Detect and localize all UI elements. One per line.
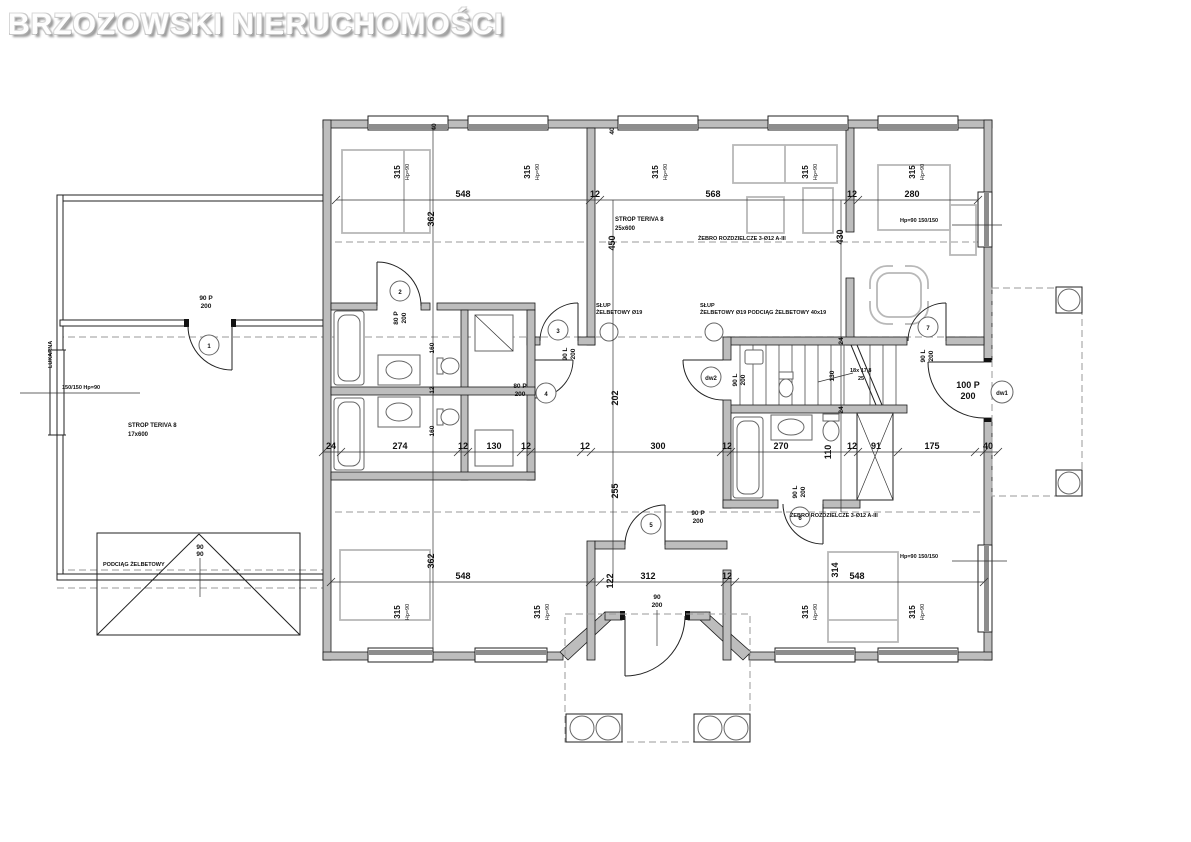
window-label-left: 150/150 Hp=90 (62, 385, 100, 391)
dim-label: 12 (847, 441, 857, 451)
stairs-note-line1: 18x 17,8 (850, 368, 871, 374)
dim-label: 568 (705, 189, 720, 199)
dim-label: 24 (838, 337, 845, 345)
window-size-label: 315 (801, 605, 810, 619)
window-right-2 (978, 545, 992, 632)
window-sill-label: Hp=90 (663, 164, 669, 180)
strop-terrace-label: STROP TERIVA 8 (128, 423, 177, 429)
window-sill-label: Hp=90 (813, 164, 819, 180)
dim-label: 430 (835, 229, 845, 244)
window-size-label: 315 (523, 165, 532, 179)
door-height: 200 (740, 374, 747, 385)
podciag-label: PODCIĄG ŻELBETOWY (103, 561, 165, 568)
strop-terrace-size: 17x600 (128, 432, 149, 438)
door-tag: dw2 (705, 376, 717, 382)
dim-label: 175 (924, 441, 939, 451)
dim-label: 40 (983, 441, 993, 451)
dim-label: 12 (429, 386, 436, 394)
window-label-right-bottom: Hp=90 150/150 (900, 554, 938, 560)
dim-label: 270 (773, 441, 788, 451)
dim-label: 12 (722, 571, 732, 581)
window-sill-label: Hp=90 (545, 604, 551, 620)
window-size-label: 315 (393, 605, 402, 619)
dim-label: 12 (722, 441, 732, 451)
dim-label: 362 (426, 211, 436, 226)
window-bottom-3 (775, 648, 855, 662)
window-top-5 (878, 116, 958, 130)
dim-label: 314 (830, 562, 840, 577)
strop-living-size: 25x600 (615, 226, 636, 232)
window-size-label: 315 (651, 165, 660, 179)
door-size: 90 P (199, 295, 213, 302)
window-right-1 (978, 192, 992, 247)
window-top-3 (618, 116, 698, 130)
roof-dim-line2: 90 (196, 551, 204, 558)
floor-plan-page: BRZOZOWSKI NIERUCHOMOŚCI (0, 0, 1191, 842)
door-height: 200 (800, 486, 807, 497)
door-size: 90 L (920, 349, 927, 362)
window-size-label: 315 (908, 165, 917, 179)
door-size: 90 L (562, 347, 569, 360)
dim-label: 40 (431, 123, 438, 131)
floor-plan-drawing: 548 12 568 12 280 24 274 12 130 12 12 30… (0, 0, 1191, 842)
door-tag: dw1 (996, 391, 1008, 397)
outer-walls (323, 120, 992, 676)
window-size-label: 315 (908, 605, 917, 619)
dim-label: 450 (607, 235, 617, 250)
window-sill-label: Hp=90 (535, 164, 541, 180)
window-sill-label: Hp=90 (405, 604, 411, 620)
dim-label: 12 (580, 441, 590, 451)
window-sill-label: Hp=90 (813, 604, 819, 620)
zebro-label-bottom: ŻEBRO ROZDZIELCZE 3-Ø12 A-III (790, 512, 878, 519)
dim-label: 130 (829, 370, 836, 381)
window-size-label: 315 (533, 605, 542, 619)
window-bottom-2 (475, 648, 547, 662)
dim-label: 548 (455, 189, 470, 199)
door-size: 100 P (956, 380, 980, 390)
dim-label: 548 (455, 571, 470, 581)
stairs-note-line2: 25 (858, 376, 864, 382)
door-height: 200 (515, 391, 526, 398)
dim-label: 91 (871, 441, 881, 451)
slup-right-line2: ŻELBETOWY Ø19 PODCIĄG ŻELBETOWY 40x19 (700, 309, 826, 316)
window-sill-label: Hp=90 (405, 164, 411, 180)
dashed-lines (57, 242, 984, 588)
strop-living-label: STROP TERIVA 8 (615, 217, 664, 223)
door-height: 200 (693, 518, 704, 525)
dim-label: 12 (521, 441, 531, 451)
window-size-label: 315 (393, 165, 402, 179)
dim-label: 280 (904, 189, 919, 199)
dim-label: 12 (590, 189, 600, 199)
window-label-right-top: Hp=90 150/150 (900, 218, 938, 224)
dim-label: 110 (823, 445, 833, 460)
dim-label: 12 (458, 441, 468, 451)
zebro-label-top: ŻEBRO ROZDZIELCZE 3-Ø12 A-III (698, 235, 786, 242)
window-top-4 (768, 116, 848, 130)
roof-dim-line1: 90 (196, 544, 204, 551)
window-top-2 (468, 116, 548, 130)
dim-label: 160 (429, 342, 436, 353)
door-height: 200 (401, 312, 408, 323)
dim-label: 255 (610, 483, 620, 498)
slup-right-line1: SŁUP (700, 303, 715, 309)
door-height: 200 (960, 391, 975, 401)
dim-label: 24 (326, 441, 336, 451)
door-size: 90 L (732, 373, 739, 386)
door-height: 200 (201, 303, 212, 310)
dim-label: 274 (392, 441, 407, 451)
concrete-columns (600, 323, 723, 341)
door-size: 90 P (691, 510, 705, 517)
dim-label: 12 (847, 189, 857, 199)
dim-label: 202 (610, 390, 620, 405)
dim-label: 300 (650, 441, 665, 451)
dim-label: 362 (426, 553, 436, 568)
entry-dim-line2: 200 (652, 602, 663, 609)
dim-label: 312 (640, 571, 655, 581)
dim-label: 130 (486, 441, 501, 451)
entry-dim-line1: 90 (653, 594, 661, 601)
window-bottom-4 (878, 648, 958, 662)
door-height: 200 (928, 350, 935, 361)
dim-label: 40 (609, 127, 616, 135)
slup-left-line1: SŁUP (596, 303, 611, 309)
dim-label: 122 (605, 573, 615, 588)
door-size: 80 P (513, 383, 527, 390)
door-size: 90 L (792, 485, 799, 498)
window-sill-label: Hp=90 (920, 164, 926, 180)
dim-label: 160 (429, 425, 436, 436)
door-size: 80 P (393, 311, 400, 325)
lukarna-label: LUKARNA (48, 341, 54, 368)
door-height: 200 (570, 348, 577, 359)
window-sill-label: Hp=90 (920, 604, 926, 620)
window-size-label: 315 (801, 165, 810, 179)
dim-label: 548 (849, 571, 864, 581)
dim-label: 24 (838, 406, 845, 414)
slup-left-line2: ŻELBETOWY Ø19 (596, 309, 642, 316)
window-bottom-1 (368, 648, 433, 662)
